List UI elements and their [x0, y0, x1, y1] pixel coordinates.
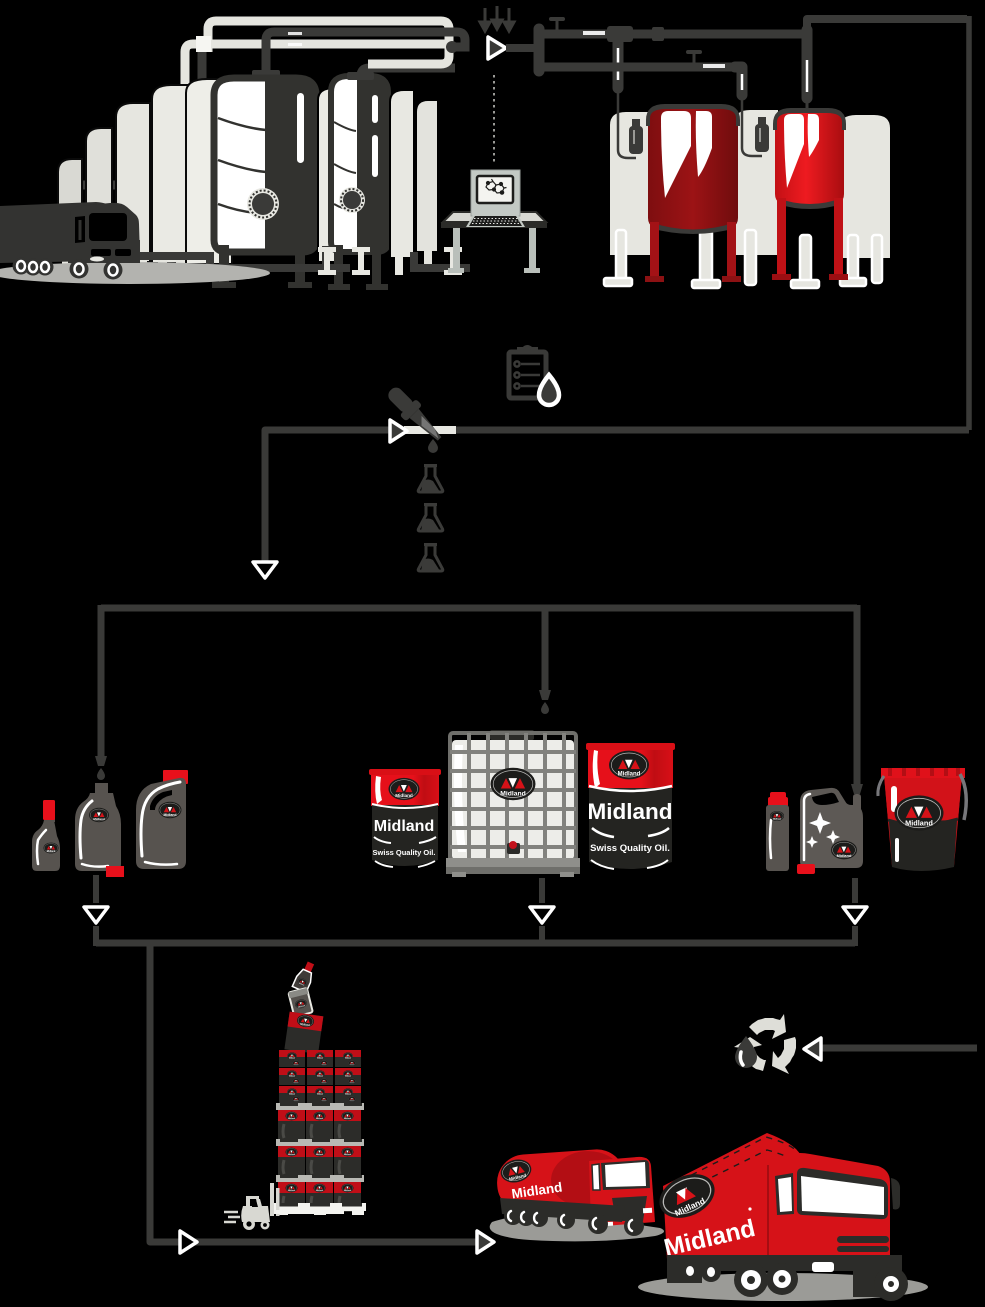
- svg-text:Swiss Quality Oil.: Swiss Quality Oil.: [373, 848, 436, 857]
- svg-text:Midland: Midland: [374, 818, 434, 835]
- svg-text:Swiss Quality Oil.: Swiss Quality Oil.: [590, 843, 670, 854]
- svg-text:Midland: Midland: [588, 799, 673, 824]
